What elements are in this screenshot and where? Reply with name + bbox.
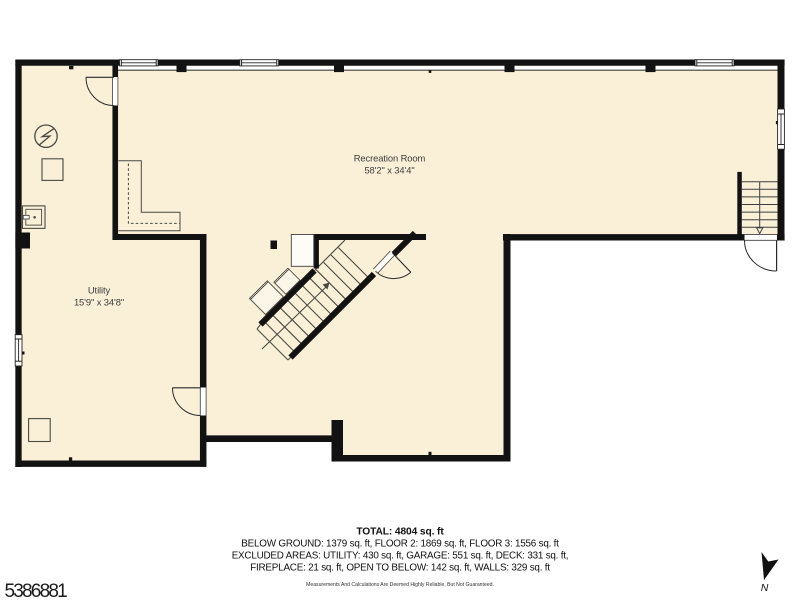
svg-text:EXCLUDED AREAS: UTILITY: 430 s: EXCLUDED AREAS: UTILITY: 430 sq. ft, GAR… xyxy=(232,551,569,562)
svg-text:15'9" x 34'8": 15'9" x 34'8" xyxy=(74,296,124,307)
svg-text:TOTAL: 4804 sq. ft: TOTAL: 4804 sq. ft xyxy=(356,527,444,538)
svg-text:Recreation Room: Recreation Room xyxy=(354,152,426,163)
svg-text:5386881: 5386881 xyxy=(5,581,68,600)
svg-text:N: N xyxy=(761,582,769,594)
svg-text:58'2" x 34'4": 58'2" x 34'4" xyxy=(364,164,414,175)
svg-text:Measurements And Calculations: Measurements And Calculations Are Deemed… xyxy=(306,582,494,588)
svg-text:FIREPLACE: 21 sq. ft, OPEN TO: FIREPLACE: 21 sq. ft, OPEN TO BELOW: 142… xyxy=(250,563,550,574)
svg-text:BELOW GROUND: 1379 sq. ft, FLO: BELOW GROUND: 1379 sq. ft, FLOOR 2: 1869… xyxy=(241,539,559,550)
svg-text:Utility: Utility xyxy=(88,285,111,296)
